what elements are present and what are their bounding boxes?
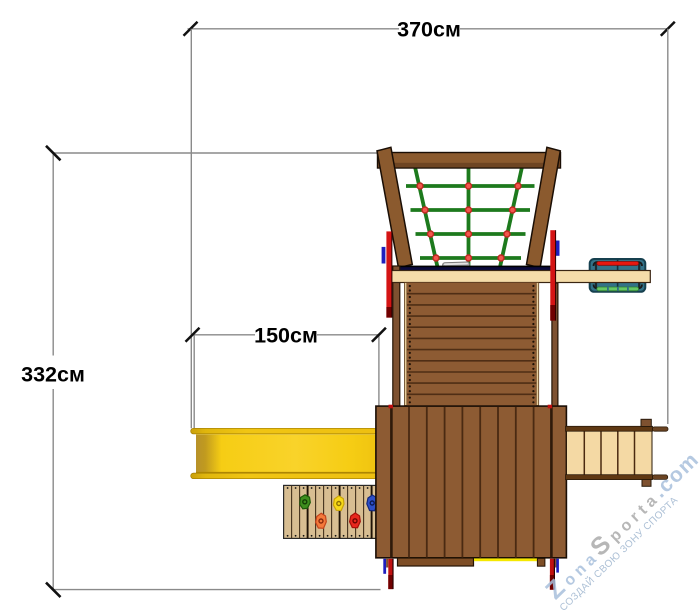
svg-text:332см: 332см [21,363,85,387]
svg-text:370см: 370см [397,18,461,42]
svg-text:150см: 150см [254,324,318,348]
